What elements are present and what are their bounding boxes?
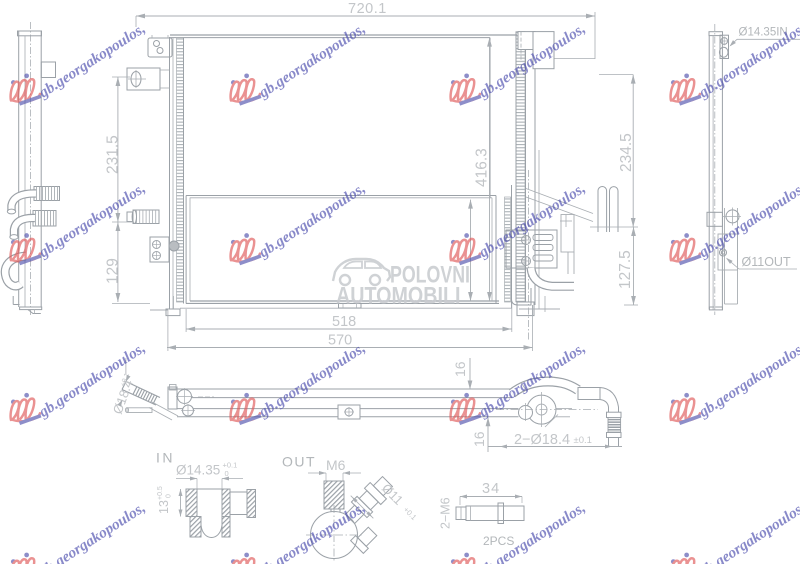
svg-text:518: 518 <box>332 314 356 330</box>
svg-text:Ø14.35: Ø14.35 <box>176 463 220 478</box>
svg-text:127.5: 127.5 <box>617 250 634 289</box>
svg-text:234.5: 234.5 <box>618 133 635 172</box>
svg-text:2−Ø18.4: 2−Ø18.4 <box>514 432 570 448</box>
svg-text:IN: IN <box>156 450 175 466</box>
svg-text:Ø11OUT: Ø11OUT <box>742 255 791 269</box>
svg-text:0: 0 <box>225 469 229 478</box>
svg-text:OUT: OUT <box>282 454 316 470</box>
svg-text:16: 16 <box>471 431 487 447</box>
svg-text:34: 34 <box>482 481 500 497</box>
svg-text:AUTOMOBILI: AUTOMOBILI <box>336 283 461 310</box>
svg-text:231.5: 231.5 <box>105 135 122 174</box>
svg-text:720.1: 720.1 <box>348 1 387 17</box>
svg-text:M6: M6 <box>326 457 346 473</box>
svg-text:0: 0 <box>166 494 173 498</box>
svg-text:±0.1: ±0.1 <box>574 435 592 446</box>
svg-text:416.3: 416.3 <box>474 148 491 187</box>
svg-text:+0.5: +0.5 <box>157 486 164 500</box>
svg-text:129: 129 <box>105 258 122 284</box>
svg-text:16: 16 <box>452 361 468 377</box>
svg-text:13: 13 <box>157 500 171 514</box>
svg-text:2−M6: 2−M6 <box>439 497 453 529</box>
